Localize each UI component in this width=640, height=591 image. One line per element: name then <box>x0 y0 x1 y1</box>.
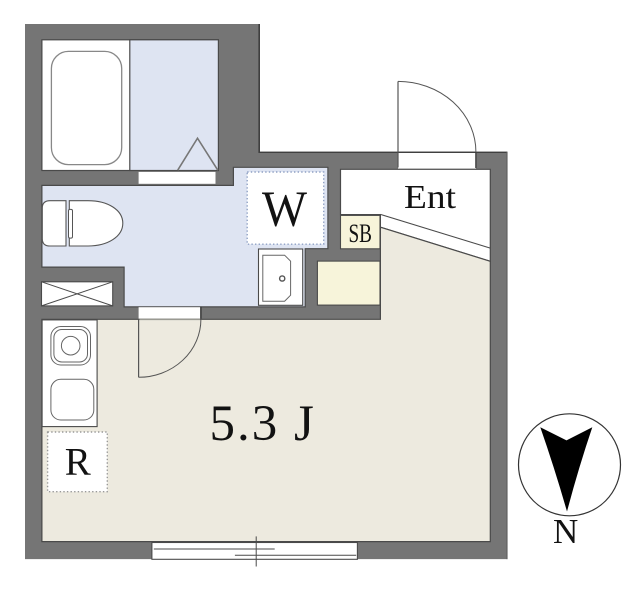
svg-text:SB: SB <box>348 219 372 248</box>
svg-text:R: R <box>65 441 91 484</box>
svg-text:5.3 J: 5.3 J <box>210 396 316 452</box>
svg-text:W: W <box>262 182 308 238</box>
svg-text:Ent: Ent <box>404 179 457 216</box>
svg-text:N: N <box>553 512 578 551</box>
